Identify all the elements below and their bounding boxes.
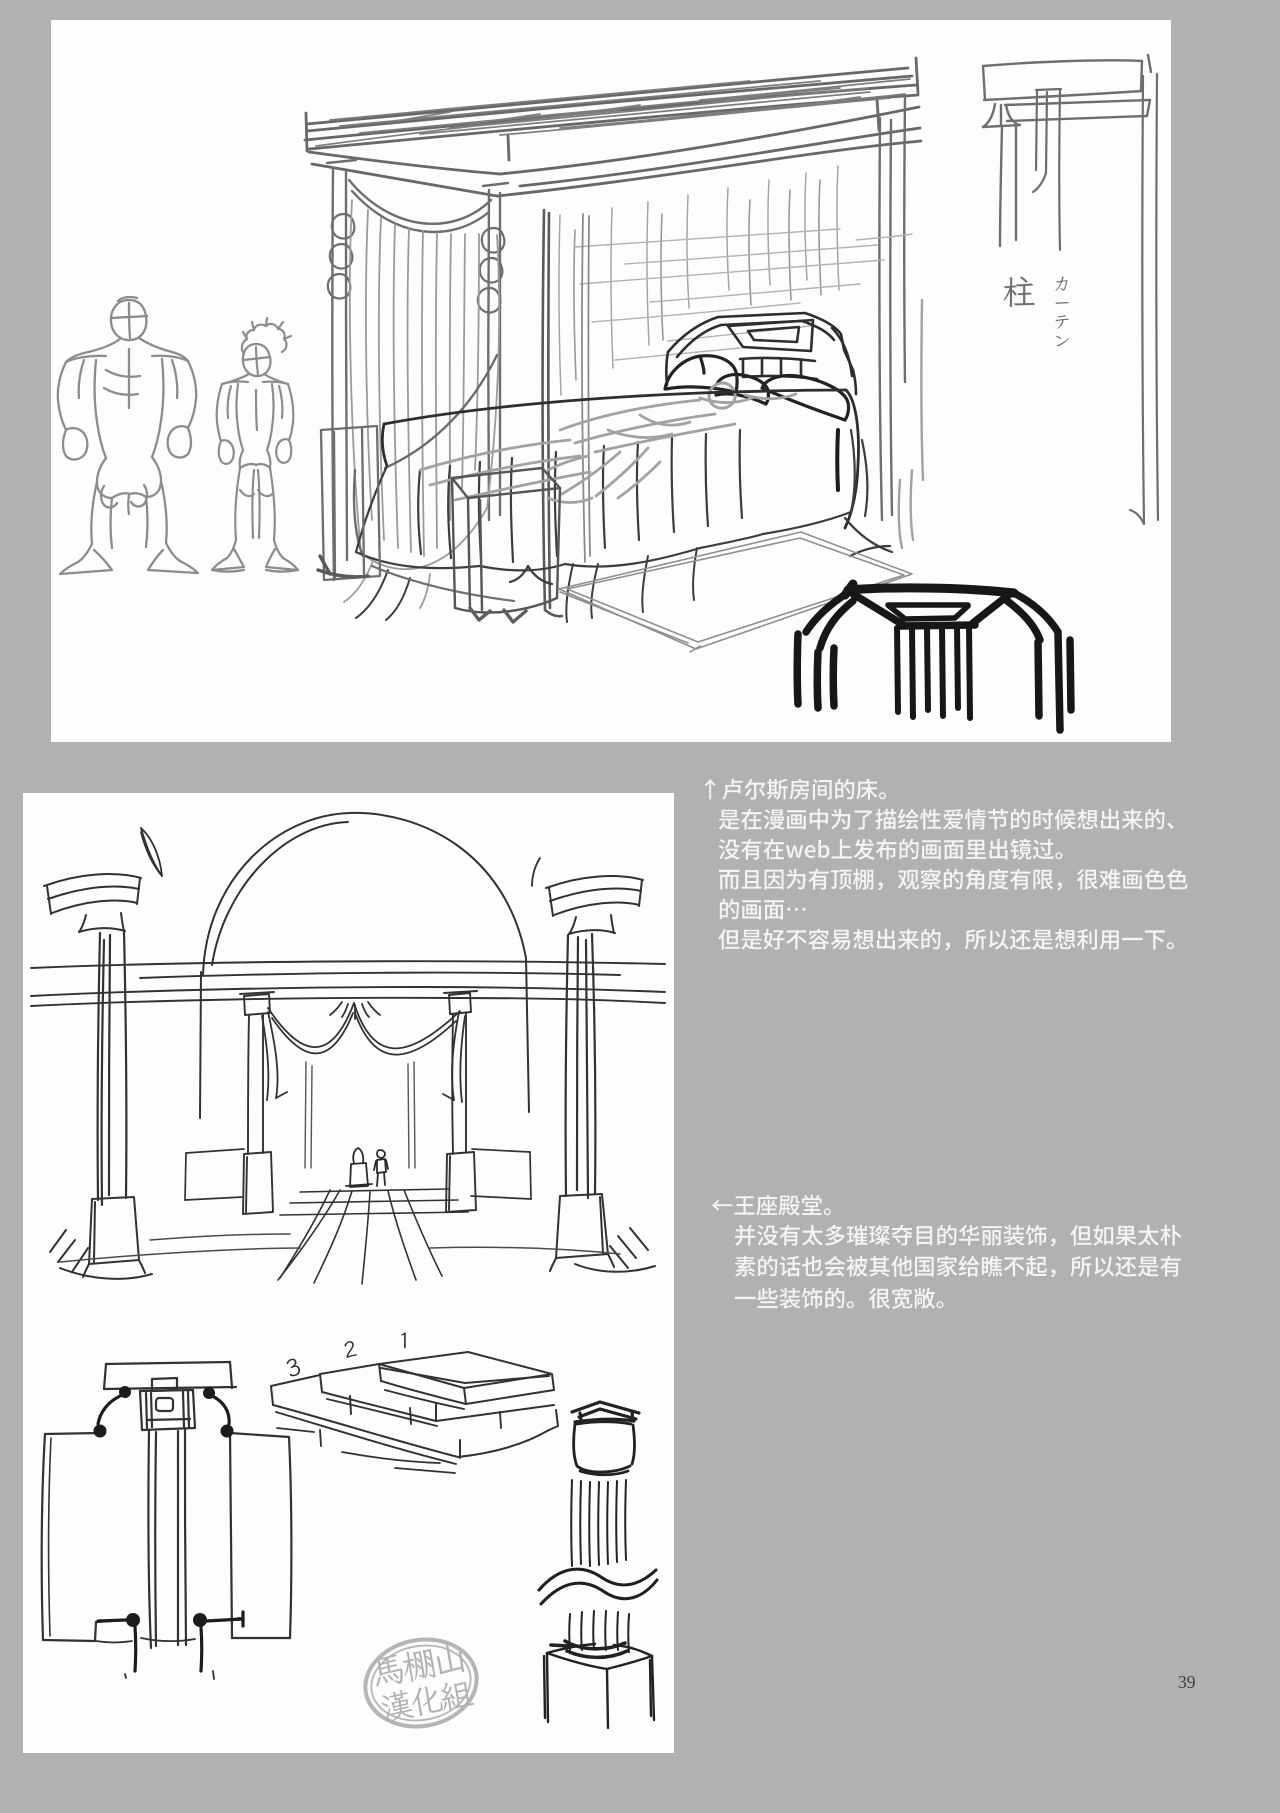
svg-text:39: 39	[1178, 1672, 1196, 1692]
